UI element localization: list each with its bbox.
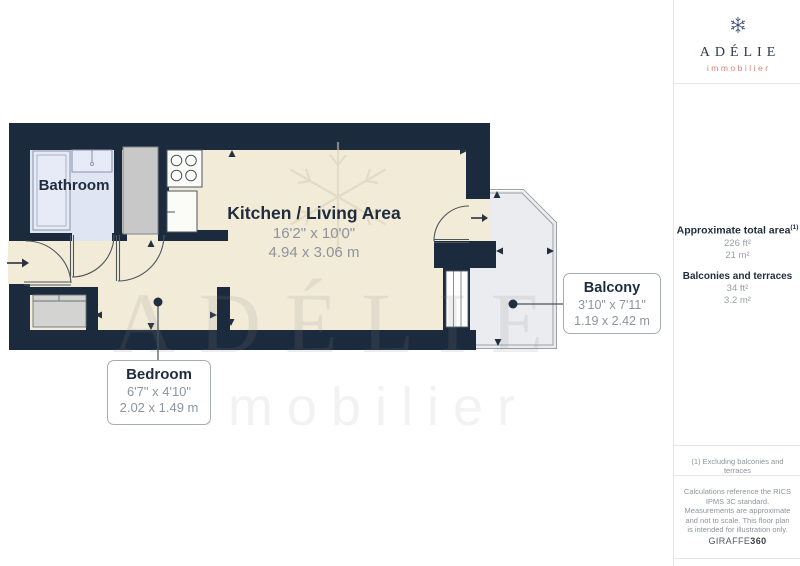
divider	[674, 475, 800, 476]
divider	[674, 83, 800, 84]
area-stats: Approximate total area(1) 226 ft² 21 m² …	[674, 221, 800, 308]
logo-subtitle: immobilier	[674, 63, 800, 73]
balcony-door-opening	[466, 199, 490, 241]
total-area-label: Approximate total area(1)	[674, 221, 800, 238]
balconies-label: Balconies and terraces	[674, 270, 800, 283]
stove	[167, 150, 202, 187]
balcony-metric: 1.19 x 2.42 m	[564, 313, 660, 329]
watermark-title: ADÉLIE	[113, 275, 567, 371]
footnote: (1) Excluding balconies and terraces	[678, 457, 797, 475]
kitchen-living-metric: 4.94 x 3.06 m	[269, 244, 360, 261]
bedroom-closet	[33, 295, 86, 327]
balcony-label-box: Balcony 3'10" x 7'11" 1.19 x 2.42 m	[563, 273, 661, 334]
kitchen-living-label: Kitchen / Living Area	[227, 203, 401, 223]
kitchen-living-imperial: 16'2" x 10'0"	[273, 225, 355, 242]
total-area-metric: 21 m²	[674, 250, 800, 263]
agency-logo: ADÉLIE immobilier	[674, 14, 800, 73]
balcony-label: Balcony	[564, 279, 660, 297]
bedroom-imperial: 6'7" x 4'10"	[108, 384, 210, 400]
bedroom-metric: 2.02 x 1.49 m	[108, 400, 210, 416]
divider	[674, 558, 800, 559]
bedroom-label: Bedroom	[108, 366, 210, 384]
wardrobe	[123, 147, 158, 234]
total-area-imperial: 226 ft²	[674, 238, 800, 251]
floor-plan-page: ADÉLIE immobilier Bathroom Kitchen / Liv…	[0, 0, 800, 566]
logo-title: ADÉLIE	[674, 45, 800, 61]
balcony-imperial: 3'10" x 7'11"	[564, 297, 660, 313]
balconies-imperial: 34 ft²	[674, 283, 800, 296]
divider	[674, 445, 800, 446]
balconies-metric: 3.2 m²	[674, 295, 800, 308]
bathroom-label: Bathroom	[39, 177, 110, 194]
disclaimer: Calculations reference the RICS IPMS 3C …	[683, 487, 792, 535]
info-sidebar: ADÉLIE immobilier Approximate total area…	[673, 0, 800, 566]
bedroom-label-box: Bedroom 6'7" x 4'10" 2.02 x 1.49 m	[107, 360, 211, 425]
bathroom-sink	[72, 150, 112, 172]
brand-mark: GIRAFFE360	[674, 536, 800, 546]
kitchen-counter	[167, 191, 197, 232]
snowflake-icon	[728, 14, 748, 36]
